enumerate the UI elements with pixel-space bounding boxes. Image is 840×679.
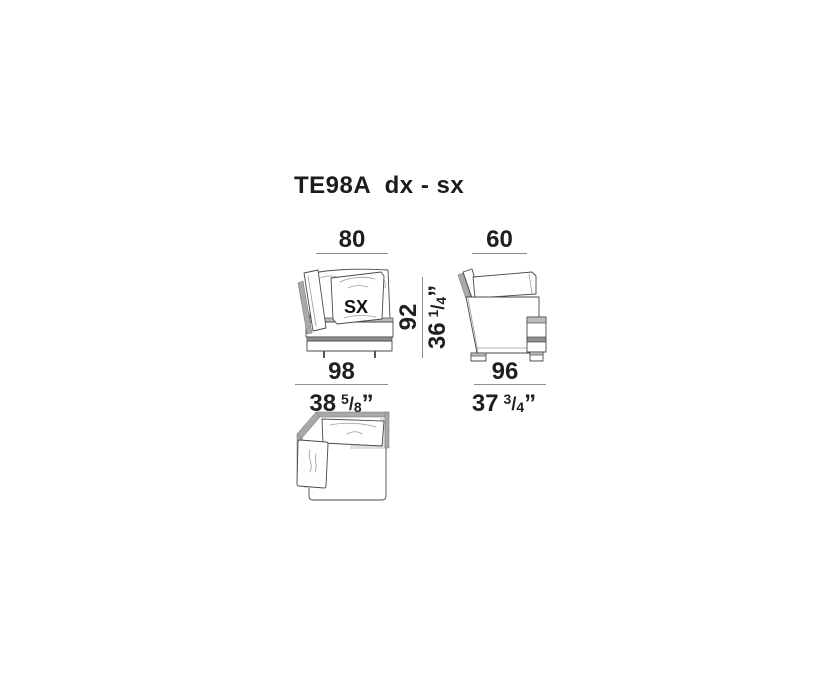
top-back-cushion [322, 419, 384, 446]
spec-sheet-page: TE98A dx - sx 80 60 SX [0, 0, 840, 679]
height-in-label: 361/4” [420, 277, 454, 357]
side-overall-depth-label: 96 [469, 360, 541, 384]
side-front-rail [527, 317, 546, 352]
top-arm-cushion [297, 440, 328, 488]
page-title: TE98A dx - sx [294, 172, 464, 200]
height-cm-label: 92 [397, 287, 421, 347]
front-top-width-label: 80 [316, 228, 388, 252]
front-overall-width-label: 98 [295, 360, 388, 384]
inch-mark: ” [424, 285, 451, 297]
front-sx-pillow: SX [331, 272, 384, 324]
side-in-whole: 37 [472, 390, 499, 417]
sx-pillow-label: SX [344, 297, 368, 317]
side-view-drawing [452, 264, 552, 364]
height-in-den: 4 [433, 297, 449, 305]
front-top-dimension-line [316, 253, 388, 254]
height-in-fraction: 1/4 [424, 297, 451, 318]
side-in-den: 4 [516, 399, 524, 415]
front-bottom-dimension-line [295, 384, 388, 385]
side-bottom-dimension-line [474, 384, 546, 385]
side-in-fraction: 3/4 [504, 390, 525, 417]
side-overall-depth-in-label: 373/4” [467, 386, 541, 420]
height-in-num: 1 [425, 310, 441, 318]
side-back-cushion [473, 272, 536, 298]
side-top-dimension-line [472, 253, 527, 254]
front-view-drawing: SX [292, 264, 394, 360]
height-in-whole: 36 [424, 322, 451, 349]
top-view-drawing [292, 410, 394, 505]
fraction-slash: / [428, 305, 448, 310]
front-legs [323, 351, 376, 358]
front-in-num: 5 [341, 391, 349, 407]
inch-mark: ” [524, 390, 536, 417]
side-top-width-label: 60 [472, 228, 527, 252]
